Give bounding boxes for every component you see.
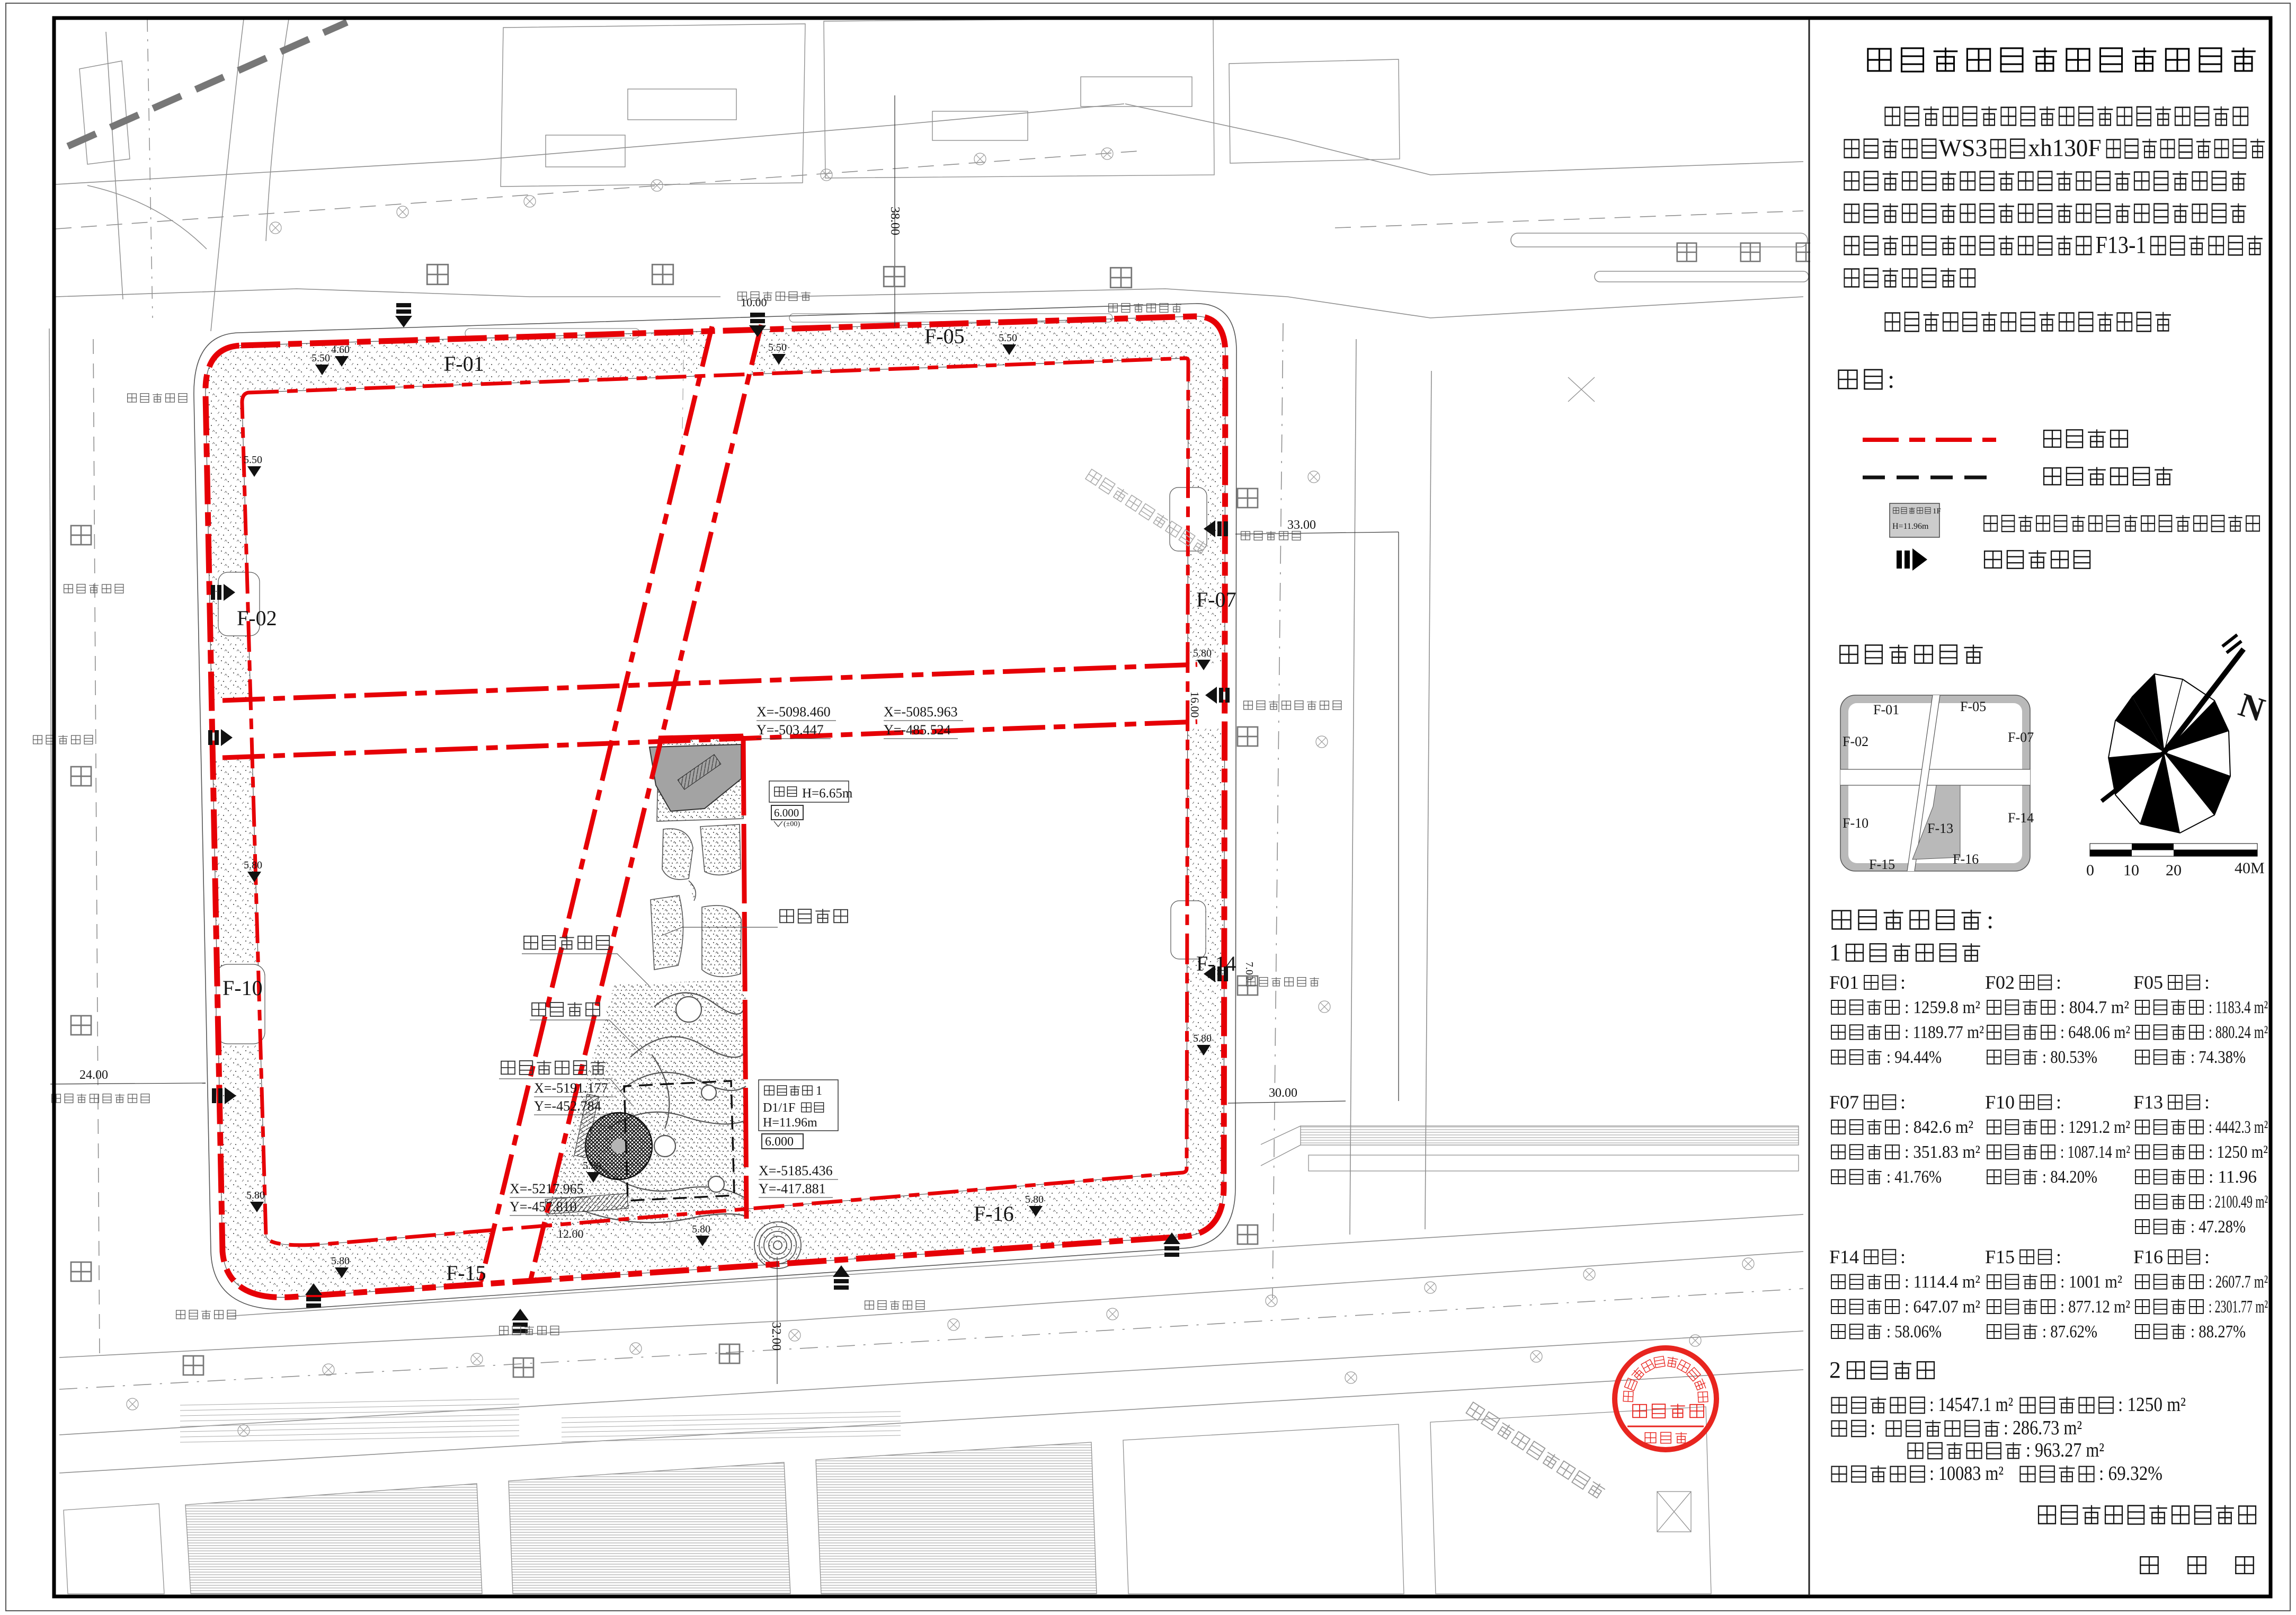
svg-text::: :: [1987, 906, 1994, 934]
svg-text:F05: F05: [2133, 972, 2163, 993]
svg-text:D1/1F: D1/1F: [763, 1101, 795, 1115]
svg-text:: 2607.7 m²: : 2607.7 m²: [2209, 1272, 2268, 1292]
svg-text:4.60: 4.60: [331, 344, 350, 356]
svg-text:: 647.07 m²: : 647.07 m²: [1905, 1297, 1980, 1317]
svg-text:F15: F15: [1985, 1246, 2015, 1267]
svg-text:: 842.6 m²: : 842.6 m²: [1905, 1117, 1973, 1137]
svg-text:: 10083 m²: : 10083 m²: [1929, 1462, 2004, 1485]
svg-text:X=-5217.965: X=-5217.965: [510, 1181, 584, 1196]
svg-text:5.80: 5.80: [1193, 647, 1212, 659]
svg-text:H=11.96m: H=11.96m: [763, 1116, 817, 1130]
svg-text:F07: F07: [1829, 1092, 1859, 1113]
svg-text::: :: [1900, 1092, 1906, 1113]
svg-text:: 1259.8 m²: : 1259.8 m²: [1905, 998, 1980, 1017]
svg-text:: 94.44%: : 94.44%: [1886, 1048, 1942, 1067]
svg-text:: 4442.3 m²: : 4442.3 m²: [2209, 1117, 2268, 1137]
svg-text:F-15: F-15: [446, 1261, 486, 1285]
svg-text:: 58.06%: : 58.06%: [1886, 1322, 1942, 1342]
svg-text:F-15: F-15: [1869, 857, 1895, 872]
svg-text::: :: [2204, 1092, 2210, 1113]
svg-text:xh130F: xh130F: [2028, 135, 2102, 162]
svg-text::: :: [2204, 1246, 2210, 1267]
svg-text:12.00: 12.00: [557, 1227, 584, 1240]
svg-text:F-13: F-13: [1927, 821, 1953, 836]
svg-text:F-10: F-10: [223, 976, 263, 1000]
svg-text:Y=-485.524: Y=-485.524: [884, 722, 951, 738]
svg-text:1: 1: [1829, 939, 1841, 965]
svg-text:0: 0: [2086, 862, 2094, 879]
svg-text:: 648.06 m²: : 648.06 m²: [2060, 1023, 2130, 1042]
svg-text:5.90: 5.90: [583, 1160, 601, 1172]
svg-text:: 69.32%: : 69.32%: [2099, 1462, 2162, 1485]
svg-text:: 80.53%: : 80.53%: [2042, 1048, 2097, 1067]
svg-text:1: 1: [816, 1084, 822, 1098]
svg-text:: 1250 m²: : 1250 m²: [2209, 1142, 2268, 1162]
svg-text:: 1087.14 m²: : 1087.14 m²: [2060, 1142, 2130, 1162]
svg-text:5.80: 5.80: [692, 1223, 710, 1235]
svg-text:33.00: 33.00: [1287, 518, 1316, 532]
svg-text:X=-5098.460: X=-5098.460: [757, 704, 831, 720]
svg-text:: 87.62%: : 87.62%: [2042, 1322, 2097, 1342]
svg-text:: 1114.4 m²: : 1114.4 m²: [1905, 1272, 1980, 1292]
svg-text:5.50: 5.50: [768, 342, 787, 353]
svg-text:: 2301.77 m²: : 2301.77 m²: [2209, 1297, 2268, 1317]
svg-text:10: 10: [2123, 862, 2139, 879]
svg-text:32.00: 32.00: [769, 1322, 783, 1351]
svg-text:F10: F10: [1985, 1092, 2015, 1113]
svg-text:2: 2: [1829, 1357, 1841, 1383]
svg-text:F-14: F-14: [2008, 810, 2034, 826]
svg-text:24.00: 24.00: [79, 1068, 108, 1082]
svg-text:: 41.76%: : 41.76%: [1886, 1167, 1942, 1187]
svg-text:: 286.73 m²: : 286.73 m²: [2004, 1417, 2082, 1439]
svg-text:: 804.7 m²: : 804.7 m²: [2060, 998, 2129, 1017]
svg-text::: :: [2056, 1246, 2061, 1267]
svg-text::: :: [1900, 1246, 1906, 1267]
svg-text:(±00): (±00): [784, 820, 800, 828]
svg-text:: 84.20%: : 84.20%: [2042, 1167, 2097, 1187]
svg-text:H=11.96m: H=11.96m: [1892, 522, 1929, 531]
svg-text:F14: F14: [1829, 1246, 1859, 1267]
svg-text:WS3: WS3: [1939, 135, 1988, 162]
svg-text:5.80: 5.80: [246, 1190, 265, 1201]
svg-text:20: 20: [2166, 862, 2182, 879]
svg-text::: :: [2056, 1092, 2061, 1113]
svg-text::: :: [2056, 972, 2061, 993]
svg-text:: 1189.77 m²: : 1189.77 m²: [1905, 1023, 1984, 1042]
svg-text:F-14: F-14: [1196, 952, 1236, 975]
svg-text:5.50: 5.50: [312, 352, 330, 364]
svg-text:1F: 1F: [1933, 507, 1941, 516]
svg-text:F-10: F-10: [1843, 815, 1868, 831]
svg-text:: 88.27%: : 88.27%: [2191, 1322, 2246, 1342]
svg-text:: 1291.2 m²: : 1291.2 m²: [2060, 1117, 2130, 1137]
svg-text:: 963.27 m²: : 963.27 m²: [2026, 1439, 2104, 1461]
svg-text:5.80: 5.80: [1025, 1194, 1044, 1205]
svg-text:: 1250 m²: : 1250 m²: [2118, 1394, 2186, 1416]
svg-text:5.80: 5.80: [1193, 1033, 1212, 1044]
svg-text::: :: [1870, 1417, 1876, 1439]
svg-text:: 877.12 m²: : 877.12 m²: [2060, 1297, 2130, 1317]
svg-text:: 880.24 m²: : 880.24 m²: [2209, 1023, 2268, 1042]
svg-text:5.80: 5.80: [244, 859, 262, 871]
svg-text:F16: F16: [2133, 1246, 2163, 1267]
svg-text:F-05: F-05: [1960, 699, 1986, 714]
svg-text:X=-5185.436: X=-5185.436: [759, 1163, 833, 1178]
svg-text:F-07: F-07: [2008, 730, 2034, 745]
svg-text:X=-5191.177: X=-5191.177: [534, 1080, 608, 1096]
svg-text:5.50: 5.50: [999, 332, 1017, 344]
svg-text:: 2100.49 m²: : 2100.49 m²: [2209, 1192, 2268, 1212]
svg-text:5.80: 5.80: [331, 1255, 350, 1267]
svg-text:H=6.65m: H=6.65m: [802, 786, 853, 801]
svg-text:F-02: F-02: [1843, 734, 1868, 749]
svg-text:: 1001 m²: : 1001 m²: [2060, 1272, 2122, 1292]
svg-text:: 11.96: : 11.96: [2209, 1167, 2257, 1187]
svg-text:6.000: 6.000: [765, 1135, 794, 1149]
svg-text:F-16: F-16: [974, 1202, 1014, 1226]
svg-text::: :: [2204, 972, 2210, 993]
svg-text:: 1183.4 m²: : 1183.4 m²: [2209, 998, 2268, 1017]
svg-text:: 47.28%: : 47.28%: [2191, 1217, 2246, 1237]
svg-text:F-01: F-01: [1873, 702, 1899, 717]
svg-text:F13: F13: [2133, 1092, 2163, 1113]
svg-text:F-16: F-16: [1953, 851, 1979, 867]
svg-text:6.000: 6.000: [774, 806, 799, 819]
svg-text:Y=-503.447: Y=-503.447: [757, 722, 824, 738]
svg-text:30.00: 30.00: [1269, 1086, 1297, 1100]
svg-text:Y=-457.810: Y=-457.810: [510, 1199, 577, 1214]
svg-text:: 14547.1 m²: : 14547.1 m²: [1929, 1394, 2013, 1416]
svg-text:F-01: F-01: [444, 352, 484, 376]
svg-text:38.00: 38.00: [888, 207, 902, 235]
svg-text:: 74.38%: : 74.38%: [2191, 1048, 2246, 1067]
svg-text:F-05: F-05: [924, 324, 965, 348]
svg-text:40M: 40M: [2235, 859, 2265, 877]
svg-text:Y=-452.784: Y=-452.784: [534, 1098, 601, 1114]
svg-text:X=-5085.963: X=-5085.963: [884, 704, 958, 720]
svg-text:F13-1: F13-1: [2096, 232, 2147, 259]
svg-text:F01: F01: [1829, 972, 1859, 993]
svg-text:16.00: 16.00: [1188, 691, 1202, 718]
svg-text:F02: F02: [1985, 972, 2015, 993]
svg-text::: :: [1888, 366, 1894, 394]
svg-text:F-02: F-02: [237, 606, 277, 630]
svg-text:Y=-417.881: Y=-417.881: [759, 1181, 826, 1196]
svg-text:F-07: F-07: [1196, 588, 1236, 611]
svg-text:: 351.83 m²: : 351.83 m²: [1905, 1142, 1980, 1162]
svg-text:5.50: 5.50: [244, 454, 262, 466]
svg-text::: :: [1900, 972, 1906, 993]
